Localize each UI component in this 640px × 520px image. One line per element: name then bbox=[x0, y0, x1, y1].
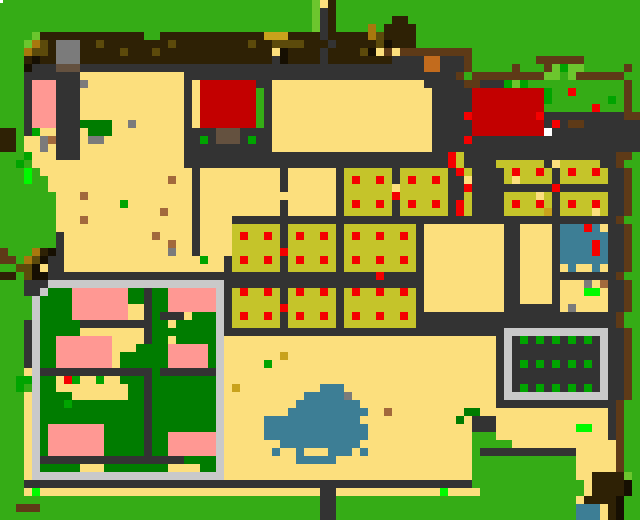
game-map-viewport bbox=[0, 0, 640, 520]
pixel-map-canvas[interactable] bbox=[0, 0, 640, 520]
